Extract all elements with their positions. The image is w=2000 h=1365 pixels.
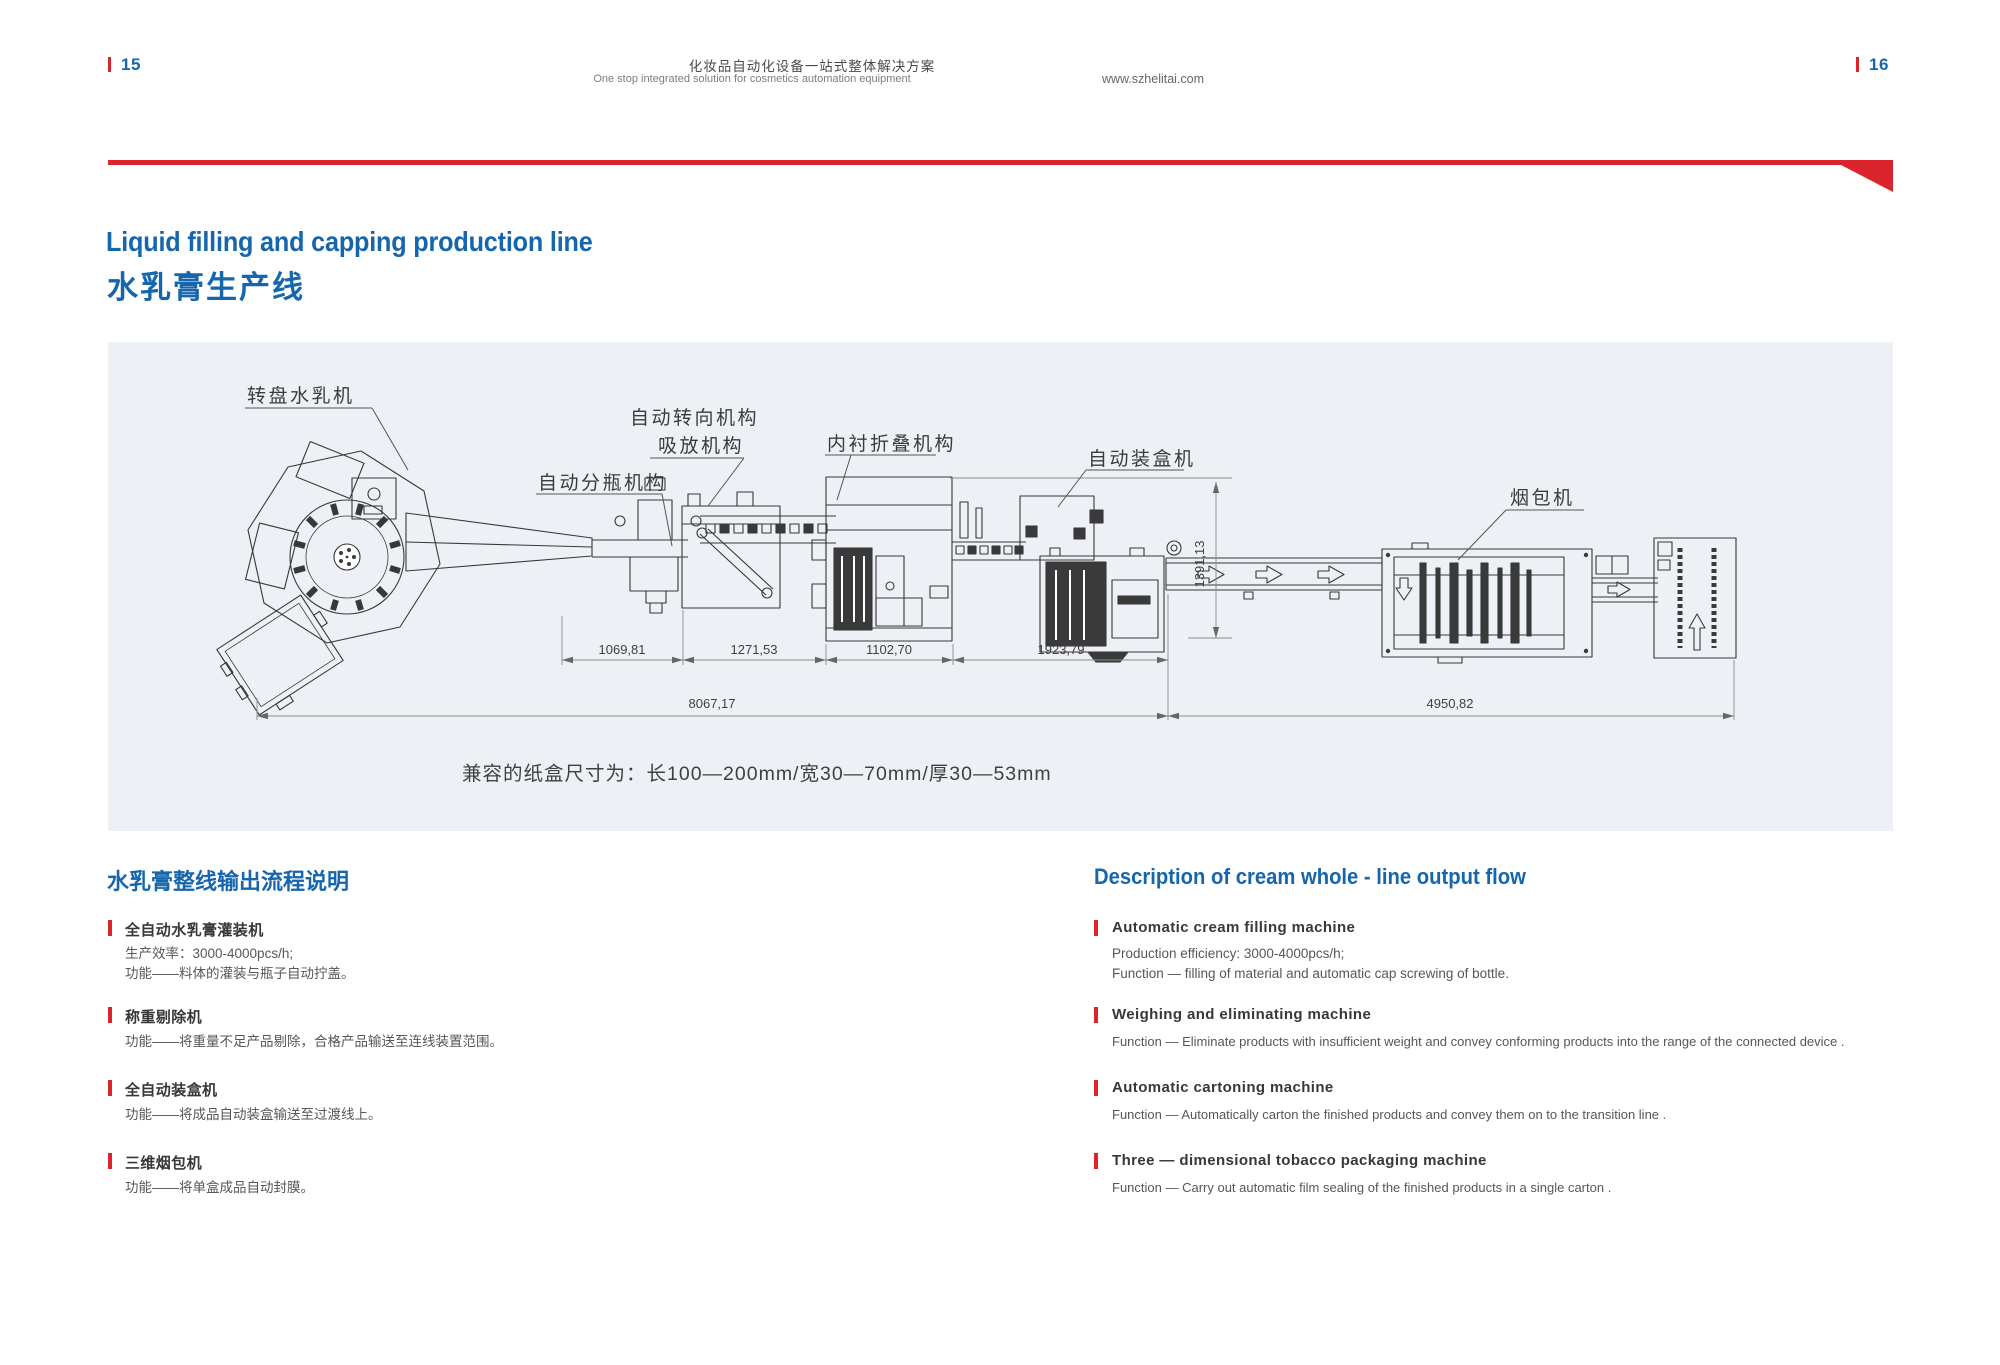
header-title-cn: 化妆品自动化设备一站式整体解决方案 xyxy=(689,55,936,75)
label-liner-folding: 内衬折叠机构 xyxy=(827,433,956,455)
dim-1102: 1102,70 xyxy=(866,642,912,657)
page-right-red-bar xyxy=(1856,57,1859,72)
film-sealing-machine xyxy=(1654,538,1736,658)
bottle-row-conveyor xyxy=(700,516,836,543)
en-item-4-title: Three — dimensional tobacco packaging ma… xyxy=(1112,1152,1487,1169)
page-title-cn: 水乳膏生产线 xyxy=(107,262,305,307)
dim-1391-vertical: 1391,13 xyxy=(1192,541,1207,588)
cn-item-3-title: 全自动装盒机 xyxy=(125,1079,217,1100)
dim-8067: 8067,17 xyxy=(689,696,736,711)
header-subtitle-en: One stop integrated solution for cosmeti… xyxy=(593,73,910,85)
en-item-3-title: Automatic cartoning machine xyxy=(1112,1079,1334,1096)
machine-labels: 转盘水乳机 自动转向机构 吸放机构 自动分瓶机构 内衬折叠机构 自动装盒机 烟包… xyxy=(247,385,1575,509)
item-bar xyxy=(1094,920,1098,936)
item-bar xyxy=(108,920,112,936)
machine-drawings xyxy=(212,442,1736,725)
bottle-divider-mechanism xyxy=(592,478,701,613)
connector-conveyor xyxy=(952,502,1026,560)
outlet-conveyor xyxy=(1592,556,1658,602)
cn-item-2-title: 称重剔除机 xyxy=(125,1006,202,1027)
label-tobacco: 烟包机 xyxy=(1510,487,1575,509)
label-bottle-divider: 自动分瓶机构 xyxy=(538,472,667,494)
en-item-2-line1: Function — Eliminate products with insuf… xyxy=(1112,1032,1845,1052)
en-item-1-title: Automatic cream filling machine xyxy=(1112,919,1355,936)
item-bar xyxy=(108,1153,112,1169)
cn-item-2-line1: 功能——将重量不足产品剔除，合格产品输送至连线装置范围。 xyxy=(125,1032,503,1052)
liner-folding-machine xyxy=(812,477,952,641)
dim-1923: 1923,79 xyxy=(1038,642,1085,657)
carton-size-caption: 兼容的纸盒尺寸为：长100—200mm/宽30—70mm/厚30—53mm xyxy=(462,763,1052,785)
item-bar xyxy=(108,1007,112,1023)
page-number-right: 16 xyxy=(1869,55,1889,75)
cartoning-machine xyxy=(1020,496,1164,662)
cn-item-4-line1: 功能——将单盒成品自动封膜。 xyxy=(125,1178,314,1198)
en-item-2-title: Weighing and eliminating machine xyxy=(1112,1006,1371,1023)
production-line-diagram: 1069,81 1271,53 1102,70 1923,79 8067,17 … xyxy=(108,342,1893,831)
en-item-1-line1: Production efficiency: 3000-4000pcs/h; xyxy=(1112,944,1344,964)
red-divider-rule xyxy=(108,160,1893,165)
page-title-en: Liquid filling and capping production li… xyxy=(106,226,593,258)
item-bar xyxy=(1094,1007,1098,1023)
brochure-spread: 15 化妆品自动化设备一站式整体解决方案 One stop integrated… xyxy=(0,0,2000,1365)
cn-item-1-line1: 生产效率：3000-4000pcs/h; xyxy=(125,944,293,964)
steering-suction-machine xyxy=(682,492,780,608)
section-title-cn: 水乳膏整线输出流程说明 xyxy=(107,864,349,896)
dim-1069: 1069,81 xyxy=(599,642,646,657)
label-cartoning: 自动装盒机 xyxy=(1088,448,1196,470)
cn-item-1-title: 全自动水乳膏灌装机 xyxy=(125,919,264,940)
page-left-red-bar xyxy=(108,57,111,72)
dimension-values: 1069,81 1271,53 1102,70 1923,79 8067,17 … xyxy=(599,541,1474,712)
cn-item-3-line1: 功能——将成品自动装盒输送至过渡线上。 xyxy=(125,1105,382,1125)
header-website: www.szhelitai.com xyxy=(1102,72,1204,86)
page-number-left: 15 xyxy=(121,55,141,75)
tilted-tray-box xyxy=(212,591,353,724)
cn-item-4-title: 三维烟包机 xyxy=(125,1152,202,1173)
item-bar xyxy=(108,1080,112,1096)
en-item-1-line2: Function — filling of material and autom… xyxy=(1112,964,1509,984)
item-bar xyxy=(1094,1153,1098,1169)
item-bar xyxy=(1094,1080,1098,1096)
label-suction: 吸放机构 xyxy=(658,435,744,457)
outfeed-conveyor xyxy=(406,513,592,571)
label-turntable: 转盘水乳机 xyxy=(247,385,355,407)
label-steering: 自动转向机构 xyxy=(630,407,759,429)
label-leader-lines xyxy=(245,408,1584,560)
en-item-3-line1: Function — Automatically carton the fini… xyxy=(1112,1105,1666,1125)
dim-1271: 1271,53 xyxy=(731,642,778,657)
tobacco-packaging-machine xyxy=(1382,543,1592,663)
dim-4950: 4950,82 xyxy=(1427,696,1474,711)
cn-item-1-line2: 功能——料体的灌装与瓶子自动拧盖。 xyxy=(125,964,355,984)
red-corner-flag xyxy=(1841,165,1893,192)
en-item-4-line1: Function — Carry out automatic film seal… xyxy=(1112,1178,1611,1198)
section-title-en: Description of cream whole - line output… xyxy=(1094,864,1526,890)
turntable-machine xyxy=(212,442,440,725)
